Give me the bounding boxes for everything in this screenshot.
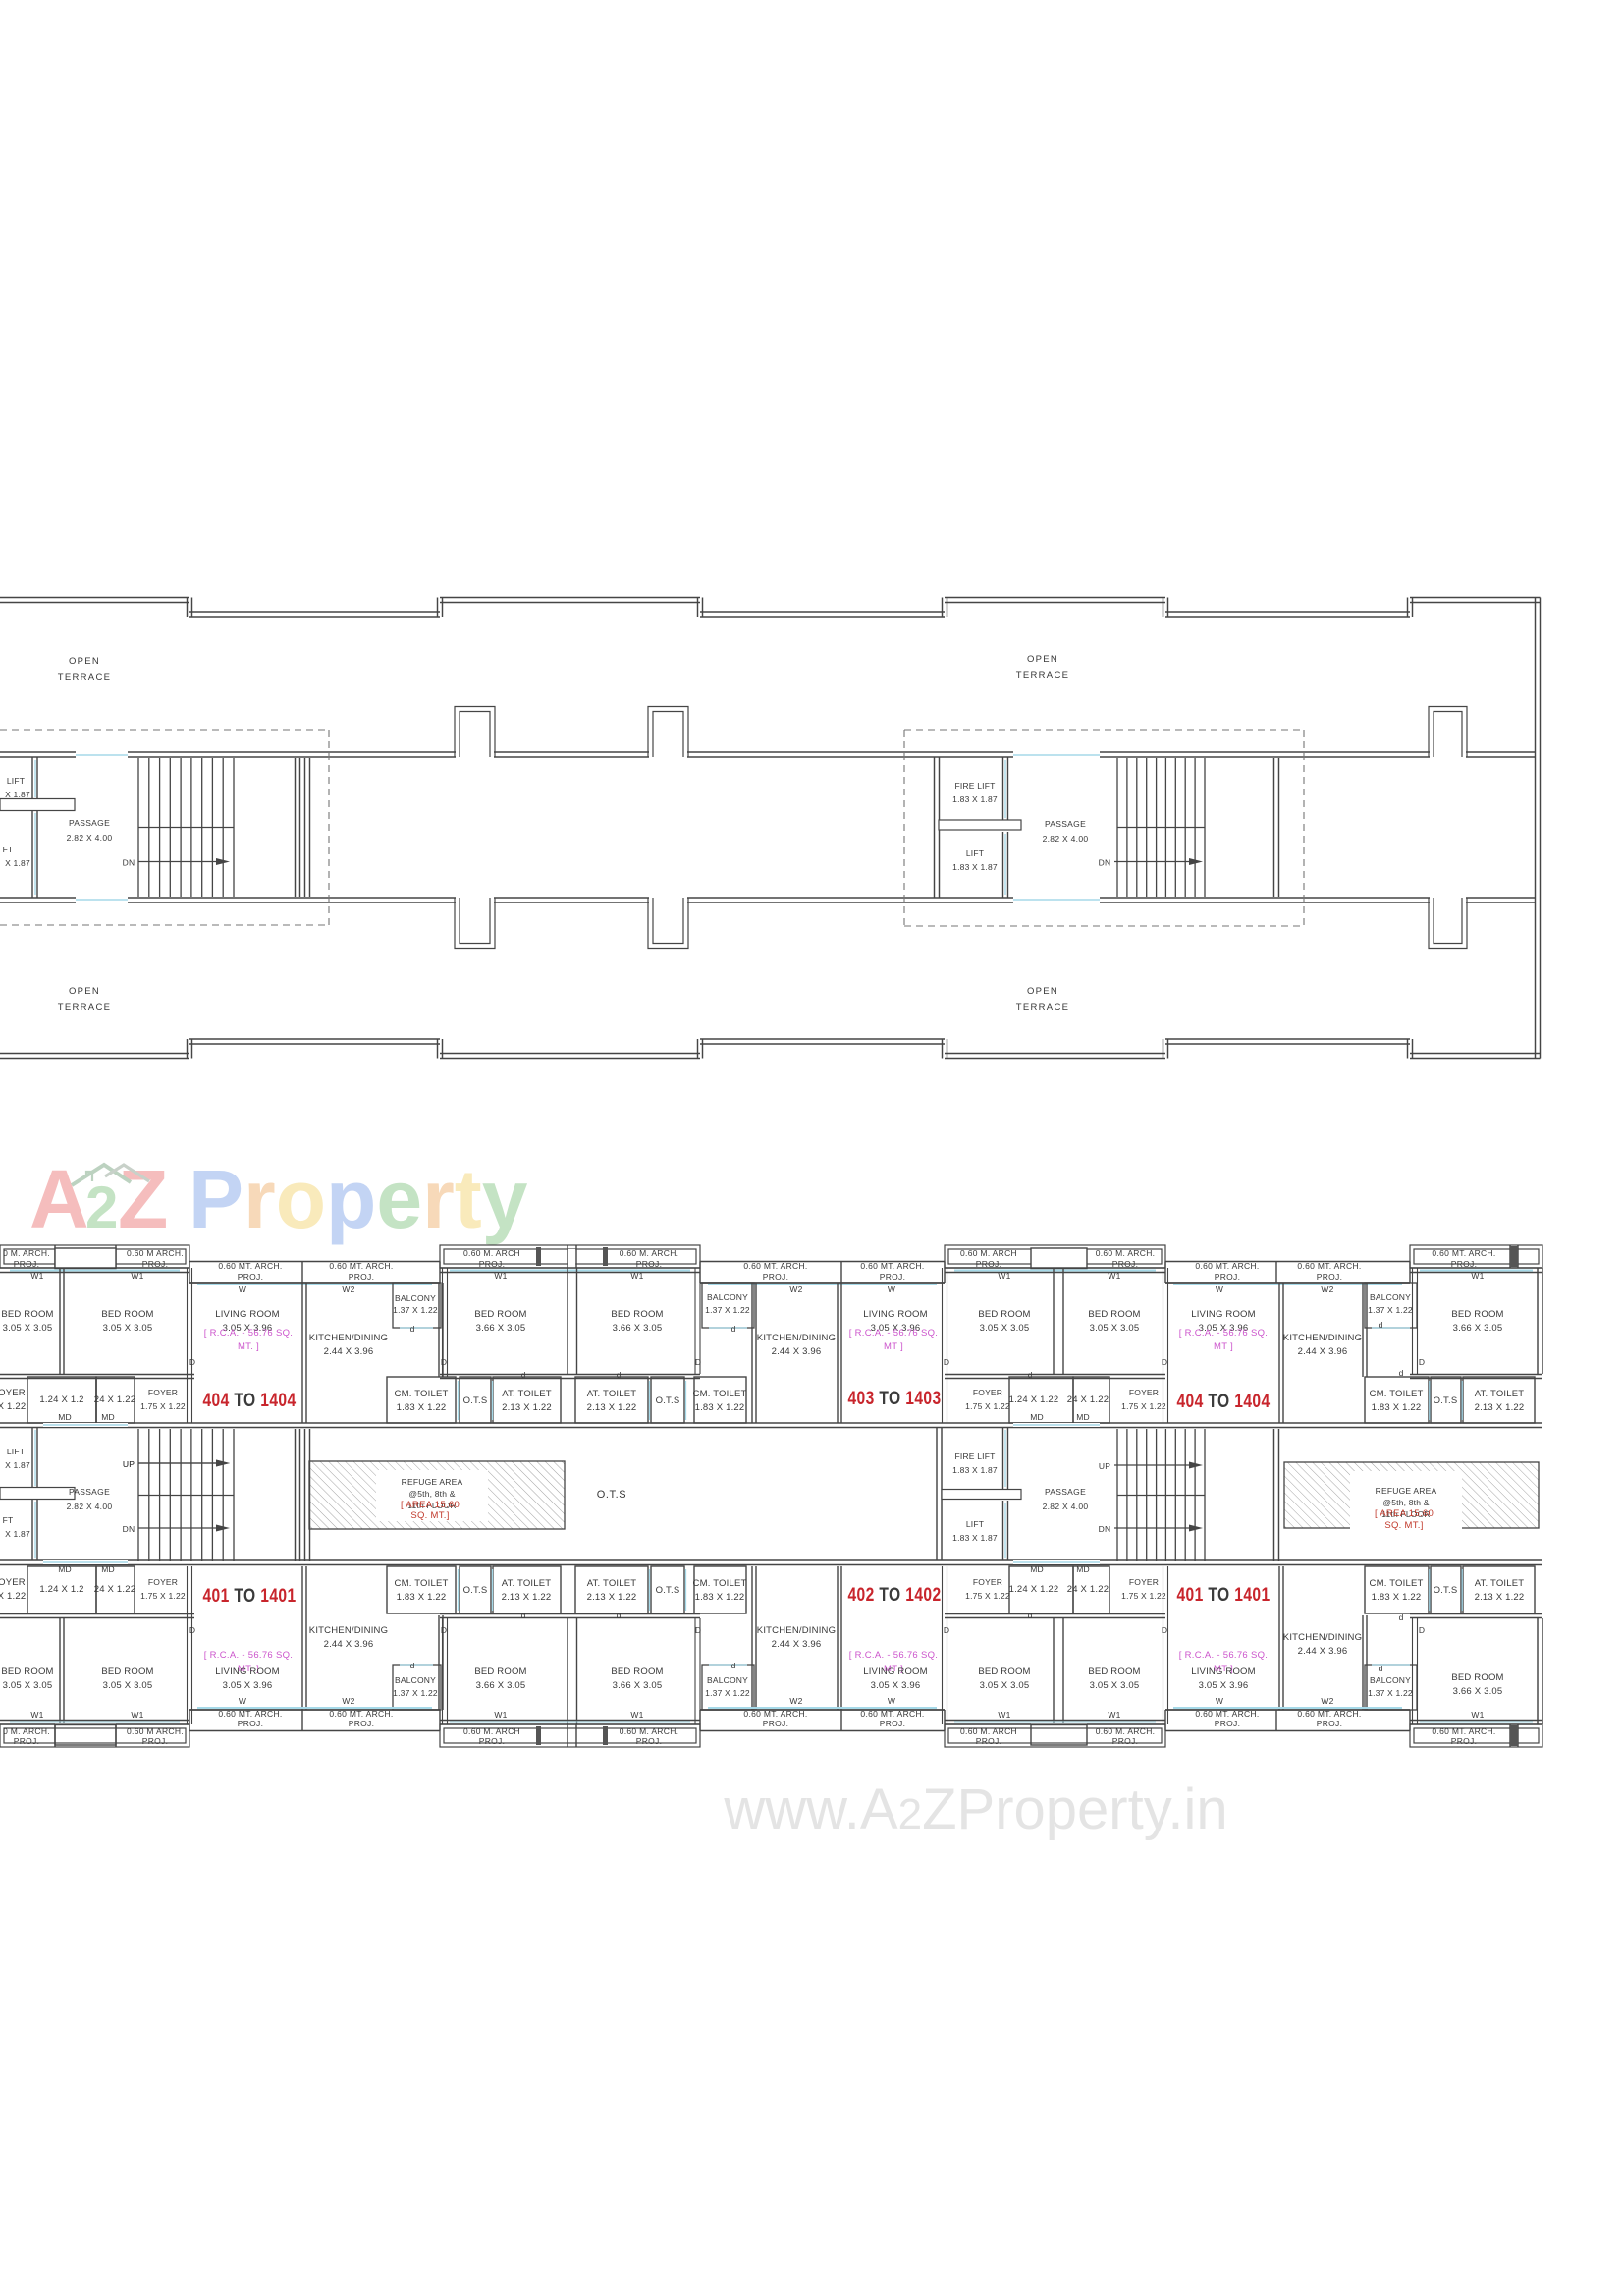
svg-text:3.05 X 3.05: 3.05 X 3.05 <box>103 1323 153 1334</box>
svg-text:X 1.87: X 1.87 <box>5 1460 30 1470</box>
svg-text:2.82 X 4.00: 2.82 X 4.00 <box>1043 834 1089 844</box>
svg-text:3.66 X 3.05: 3.66 X 3.05 <box>1453 1323 1503 1334</box>
svg-text:O.T.S: O.T.S <box>463 1585 488 1596</box>
svg-text:[ AREA 15.60: [ AREA 15.60 <box>1375 1508 1434 1519</box>
svg-text:CM. TOILET: CM. TOILET <box>693 1389 747 1399</box>
svg-text:D: D <box>441 1625 447 1635</box>
svg-text:CM. TOILET: CM. TOILET <box>395 1578 449 1589</box>
svg-text:d: d <box>1399 1613 1404 1622</box>
svg-text:W1: W1 <box>131 1710 143 1720</box>
svg-text:1.83 X 1.22: 1.83 X 1.22 <box>397 1402 447 1413</box>
svg-text:0.60 M. ARCH: 0.60 M. ARCH <box>960 1248 1017 1258</box>
svg-text:[ R.C.A. - 56.76 SQ.: [ R.C.A. - 56.76 SQ. <box>204 1328 293 1339</box>
svg-text:FIRE LIFT: FIRE LIFT <box>955 781 996 791</box>
svg-text:0.60 M ARCH.: 0.60 M ARCH. <box>127 1248 184 1258</box>
svg-text:D: D <box>1162 1625 1167 1635</box>
svg-text:O.T.S: O.T.S <box>656 1395 680 1406</box>
svg-text:BALCONY: BALCONY <box>395 1675 436 1685</box>
svg-text:403 TO 1403: 403 TO 1403 <box>847 1387 941 1408</box>
svg-text:1.24 X 1.2: 1.24 X 1.2 <box>39 1584 83 1595</box>
svg-text:OPEN: OPEN <box>1027 654 1058 665</box>
svg-text:1.83 X 1.22: 1.83 X 1.22 <box>695 1592 745 1603</box>
svg-text:404 TO 1404: 404 TO 1404 <box>202 1389 296 1410</box>
svg-text:0.60 M. ARCH: 0.60 M. ARCH <box>463 1248 520 1258</box>
svg-text:0.60 M. ARCH.: 0.60 M. ARCH. <box>1096 1726 1156 1736</box>
svg-text:d: d <box>1379 1320 1383 1330</box>
svg-text:PROJ.: PROJ. <box>238 1719 264 1728</box>
svg-text:LIFT: LIFT <box>7 1447 25 1456</box>
svg-text:O.T.S: O.T.S <box>463 1395 488 1406</box>
svg-text:OPEN: OPEN <box>69 656 100 667</box>
svg-text:0.60 M ARCH.: 0.60 M ARCH. <box>127 1726 184 1736</box>
svg-text:3.05 X 3.05: 3.05 X 3.05 <box>980 1323 1030 1334</box>
svg-text:REFUGE AREA: REFUGE AREA <box>402 1477 463 1487</box>
svg-text:PROJ.: PROJ. <box>1215 1272 1241 1282</box>
svg-text:W: W <box>1216 1285 1223 1294</box>
svg-text:REFUGE AREA: REFUGE AREA <box>1376 1486 1437 1496</box>
svg-text:D: D <box>1419 1357 1425 1367</box>
svg-text:1.37 X 1.22: 1.37 X 1.22 <box>393 1305 438 1315</box>
svg-text:SQ. MT.]: SQ. MT.] <box>1384 1520 1423 1531</box>
svg-text:FOYER: FOYER <box>148 1577 178 1587</box>
svg-text:PROJ.: PROJ. <box>636 1736 663 1746</box>
svg-text:FT: FT <box>3 1515 14 1525</box>
svg-text:[ R.C.A. - 56.76 SQ.: [ R.C.A. - 56.76 SQ. <box>849 1650 938 1661</box>
svg-text:W1: W1 <box>998 1710 1010 1720</box>
svg-text:1.75 X 1.22: 1.75 X 1.22 <box>965 1591 1010 1601</box>
svg-text:1.24 X 1.22: 1.24 X 1.22 <box>1009 1394 1059 1405</box>
svg-text:2.13 X 1.22: 2.13 X 1.22 <box>587 1402 637 1413</box>
svg-text:[ AREA 15.60: [ AREA 15.60 <box>401 1500 460 1510</box>
svg-text:MT. ]: MT. ] <box>238 1341 259 1352</box>
svg-text:SQ. MT.]: SQ. MT.] <box>410 1510 449 1521</box>
svg-text:1.24 X 1.2: 1.24 X 1.2 <box>39 1394 83 1405</box>
svg-text:LIVING ROOM: LIVING ROOM <box>863 1309 928 1320</box>
svg-text:AT. TOILET: AT. TOILET <box>1475 1578 1525 1589</box>
svg-text:1.75 X 1.22: 1.75 X 1.22 <box>1121 1401 1166 1411</box>
svg-text:PROJ.: PROJ. <box>1317 1272 1343 1282</box>
svg-text:1.37 X 1.22: 1.37 X 1.22 <box>393 1688 438 1698</box>
svg-text:0.60 M. ARCH: 0.60 M. ARCH <box>463 1726 520 1736</box>
svg-text:0.60 MT. ARCH.: 0.60 MT. ARCH. <box>1195 1709 1259 1719</box>
svg-text:1.75 X 1.22: 1.75 X 1.22 <box>140 1591 186 1601</box>
svg-text:0.60 MT. ARCH.: 0.60 MT. ARCH. <box>218 1261 282 1271</box>
svg-text:W1: W1 <box>1108 1271 1120 1281</box>
svg-text:PASSAGE: PASSAGE <box>1045 1487 1086 1497</box>
svg-text:O.T.S: O.T.S <box>1434 1395 1458 1406</box>
svg-text:www.A2ZProperty.in: www.A2ZProperty.in <box>723 1777 1227 1841</box>
svg-text:1.75 X 1.22: 1.75 X 1.22 <box>140 1401 186 1411</box>
svg-text:0.60 MT. ARCH.: 0.60 MT. ARCH. <box>743 1709 807 1719</box>
svg-text:1.37 X 1.22: 1.37 X 1.22 <box>705 1688 750 1698</box>
svg-text:PROJ.: PROJ. <box>1451 1736 1478 1746</box>
svg-text:d: d <box>1028 1611 1033 1620</box>
svg-text:FT: FT <box>3 845 14 854</box>
svg-text:PROJ.: PROJ. <box>763 1272 789 1282</box>
svg-text:3.66 X 3.05: 3.66 X 3.05 <box>613 1323 663 1334</box>
svg-text:W: W <box>888 1696 895 1706</box>
svg-text:@5th, 8th &: @5th, 8th & <box>408 1489 455 1499</box>
svg-text:BED ROOM: BED ROOM <box>1 1309 53 1320</box>
svg-text:DN: DN <box>1099 858 1111 868</box>
svg-text:TERRACE: TERRACE <box>58 1002 112 1012</box>
svg-text:0.60 MT. ARCH.: 0.60 MT. ARCH. <box>743 1261 807 1271</box>
svg-text:0.60 MT. ARCH.: 0.60 MT. ARCH. <box>860 1709 924 1719</box>
svg-text:d: d <box>1028 1370 1033 1380</box>
svg-text:O.T.S: O.T.S <box>656 1585 680 1596</box>
svg-text:W2: W2 <box>789 1696 802 1706</box>
svg-text:[ R.C.A. - 56.76 SQ.: [ R.C.A. - 56.76 SQ. <box>204 1650 293 1661</box>
svg-text:MD: MD <box>58 1412 72 1422</box>
svg-text:MT ]: MT ] <box>1214 1341 1233 1352</box>
svg-text:0.60 MT. ARCH.: 0.60 MT. ARCH. <box>329 1709 393 1719</box>
svg-text:2.44 X 3.96: 2.44 X 3.96 <box>772 1639 822 1650</box>
svg-text:2.82 X 4.00: 2.82 X 4.00 <box>67 833 113 843</box>
svg-text:W2: W2 <box>342 1285 354 1294</box>
svg-text:LIFT: LIFT <box>7 776 25 786</box>
svg-text:D: D <box>189 1357 195 1367</box>
svg-text:d: d <box>1379 1664 1383 1673</box>
svg-text:W: W <box>239 1696 246 1706</box>
svg-text:PROJ.: PROJ. <box>1215 1719 1241 1728</box>
svg-text:FOYER: FOYER <box>973 1577 1002 1587</box>
svg-text:BALCONY: BALCONY <box>707 1675 748 1685</box>
svg-text:AT. TOILET: AT. TOILET <box>502 1578 552 1589</box>
svg-text:CM. TOILET: CM. TOILET <box>395 1389 449 1399</box>
svg-text:1.83 X 1.22: 1.83 X 1.22 <box>695 1402 745 1413</box>
svg-text:BALCONY: BALCONY <box>1370 1675 1411 1685</box>
svg-text:d: d <box>521 1611 526 1620</box>
svg-text:X 1.22: X 1.22 <box>0 1401 26 1412</box>
svg-text:3.05 X 3.05: 3.05 X 3.05 <box>3 1323 53 1334</box>
svg-text:BALCONY: BALCONY <box>707 1292 748 1302</box>
svg-text:LIVING ROOM: LIVING ROOM <box>1191 1309 1256 1320</box>
svg-text:MD: MD <box>101 1412 115 1422</box>
svg-text:PASSAGE: PASSAGE <box>69 1487 110 1497</box>
svg-text:PROJ.: PROJ. <box>880 1272 906 1282</box>
svg-text:BED ROOM: BED ROOM <box>1088 1667 1140 1677</box>
svg-text:BED ROOM: BED ROOM <box>611 1309 663 1320</box>
svg-text:PROJ.: PROJ. <box>976 1736 1002 1746</box>
svg-text:2: 2 <box>85 1175 118 1240</box>
svg-text:0.60 M. ARCH: 0.60 M. ARCH <box>960 1726 1017 1736</box>
svg-text:1.37 X 1.22: 1.37 X 1.22 <box>1368 1688 1413 1698</box>
svg-text:W: W <box>888 1285 895 1294</box>
svg-text:W2: W2 <box>1321 1285 1333 1294</box>
svg-text:BED ROOM: BED ROOM <box>474 1309 526 1320</box>
svg-text:D: D <box>944 1357 949 1367</box>
svg-text:1.83 X 1.22: 1.83 X 1.22 <box>1372 1402 1422 1413</box>
svg-text:[ R.C.A. - 56.76 SQ.: [ R.C.A. - 56.76 SQ. <box>1179 1328 1268 1339</box>
svg-text:3.05 X 3.96: 3.05 X 3.96 <box>223 1680 273 1691</box>
svg-text:D: D <box>695 1357 701 1367</box>
svg-text:PROJ.: PROJ. <box>142 1736 169 1746</box>
svg-text:PROJ.: PROJ. <box>14 1736 40 1746</box>
svg-text:3.05 X 3.05: 3.05 X 3.05 <box>1090 1680 1140 1691</box>
svg-text:0.60 MT. ARCH.: 0.60 MT. ARCH. <box>329 1261 393 1271</box>
svg-text:Property: Property <box>189 1153 528 1245</box>
svg-text:d: d <box>617 1370 622 1380</box>
svg-text:KITCHEN/DINING: KITCHEN/DINING <box>757 1625 836 1636</box>
svg-text:W1: W1 <box>30 1710 43 1720</box>
svg-text:3.66 X 3.05: 3.66 X 3.05 <box>613 1680 663 1691</box>
svg-text:1.37 X 1.22: 1.37 X 1.22 <box>705 1305 750 1315</box>
svg-text:O.T.S: O.T.S <box>1434 1585 1458 1596</box>
svg-text:OPEN: OPEN <box>69 986 100 997</box>
svg-text:LIFT: LIFT <box>966 848 984 858</box>
svg-text:BED ROOM: BED ROOM <box>1451 1309 1503 1320</box>
svg-text:W: W <box>1216 1696 1223 1706</box>
svg-text:X 1.87: X 1.87 <box>5 858 30 868</box>
svg-text:W1: W1 <box>30 1271 43 1281</box>
svg-text:24 X 1.22: 24 X 1.22 <box>94 1394 135 1405</box>
svg-text:2.13 X 1.22: 2.13 X 1.22 <box>1475 1402 1525 1413</box>
svg-text:KITCHEN/DINING: KITCHEN/DINING <box>757 1333 836 1343</box>
svg-text:2.13 X 1.22: 2.13 X 1.22 <box>502 1592 552 1603</box>
svg-text:1.24 X 1.22: 1.24 X 1.22 <box>1009 1584 1059 1595</box>
svg-text:0 M. ARCH.: 0 M. ARCH. <box>3 1726 50 1736</box>
svg-text:[ R.C.A. - 56.76 SQ.: [ R.C.A. - 56.76 SQ. <box>1179 1650 1268 1661</box>
svg-text:d: d <box>410 1661 415 1670</box>
svg-text:AT. TOILET: AT. TOILET <box>587 1578 637 1589</box>
svg-text:W1: W1 <box>630 1271 643 1281</box>
svg-text:LIVING ROOM: LIVING ROOM <box>863 1667 928 1677</box>
svg-text:2.13 X 1.22: 2.13 X 1.22 <box>502 1402 552 1413</box>
svg-text:d: d <box>731 1324 736 1334</box>
svg-text:FOYER: FOYER <box>973 1388 1002 1397</box>
svg-text:BED ROOM: BED ROOM <box>1 1667 53 1677</box>
svg-text:BALCONY: BALCONY <box>395 1293 436 1303</box>
svg-text:0.60 M. ARCH.: 0.60 M. ARCH. <box>620 1726 679 1736</box>
svg-text:404 TO 1404: 404 TO 1404 <box>1176 1390 1270 1411</box>
svg-text:24 X 1.22: 24 X 1.22 <box>1067 1394 1109 1405</box>
svg-text:3.05 X 3.96: 3.05 X 3.96 <box>871 1680 921 1691</box>
svg-text:BED ROOM: BED ROOM <box>474 1667 526 1677</box>
svg-text:3.66 X 3.05: 3.66 X 3.05 <box>476 1323 526 1334</box>
svg-text:KITCHEN/DINING: KITCHEN/DINING <box>309 1625 388 1636</box>
svg-text:PROJ.: PROJ. <box>349 1719 375 1728</box>
svg-text:KITCHEN/DINING: KITCHEN/DINING <box>1283 1333 1362 1343</box>
svg-text:LIVING ROOM: LIVING ROOM <box>215 1667 280 1677</box>
svg-text:0.60 MT. ARCH.: 0.60 MT. ARCH. <box>1432 1248 1495 1258</box>
svg-text:UP: UP <box>123 1459 135 1469</box>
svg-text:PROJ.: PROJ. <box>763 1719 789 1728</box>
svg-text:1.75 X 1.22: 1.75 X 1.22 <box>1121 1591 1166 1601</box>
svg-text:2.13 X 1.22: 2.13 X 1.22 <box>587 1592 637 1603</box>
svg-text:2.82 X 4.00: 2.82 X 4.00 <box>1043 1502 1089 1511</box>
svg-text:2.44 X 3.96: 2.44 X 3.96 <box>1298 1346 1348 1357</box>
svg-text:LIVING ROOM: LIVING ROOM <box>1191 1667 1256 1677</box>
svg-text:0.60 M. ARCH.: 0.60 M. ARCH. <box>620 1248 679 1258</box>
svg-text:1.75 X 1.22: 1.75 X 1.22 <box>965 1401 1010 1411</box>
svg-text:AT. TOILET: AT. TOILET <box>502 1389 552 1399</box>
svg-text:2.44 X 3.96: 2.44 X 3.96 <box>324 1639 374 1650</box>
svg-text:D: D <box>1419 1625 1425 1635</box>
svg-text:FOYER: FOYER <box>1129 1577 1159 1587</box>
svg-text:OYER: OYER <box>0 1388 26 1398</box>
svg-text:PROJ.: PROJ. <box>238 1272 264 1282</box>
svg-text:0.60 MT. ARCH.: 0.60 MT. ARCH. <box>860 1261 924 1271</box>
svg-text:BALCONY: BALCONY <box>1370 1292 1411 1302</box>
svg-text:W1: W1 <box>630 1710 643 1720</box>
svg-text:3.05 X 3.05: 3.05 X 3.05 <box>3 1680 53 1691</box>
svg-text:W: W <box>239 1285 246 1294</box>
svg-text:401 TO 1401: 401 TO 1401 <box>202 1584 296 1606</box>
svg-text:CM. TOILET: CM. TOILET <box>1370 1578 1424 1589</box>
svg-text:PROJ.: PROJ. <box>880 1719 906 1728</box>
svg-text:D: D <box>189 1625 195 1635</box>
svg-text:2.13 X 1.22: 2.13 X 1.22 <box>1475 1592 1525 1603</box>
svg-text:AT. TOILET: AT. TOILET <box>1475 1389 1525 1399</box>
svg-text:d: d <box>521 1370 526 1380</box>
svg-text:FIRE LIFT: FIRE LIFT <box>955 1451 996 1461</box>
svg-text:BED ROOM: BED ROOM <box>101 1667 153 1677</box>
svg-text:CM. TOILET: CM. TOILET <box>693 1578 747 1589</box>
svg-text:1.83 X 1.87: 1.83 X 1.87 <box>952 794 998 804</box>
svg-text:W1: W1 <box>1471 1710 1484 1720</box>
svg-text:W1: W1 <box>1471 1271 1484 1281</box>
svg-text:3.05 X 3.05: 3.05 X 3.05 <box>1090 1323 1140 1334</box>
svg-text:2.44 X 3.96: 2.44 X 3.96 <box>1298 1646 1348 1657</box>
svg-text:A: A <box>29 1153 89 1245</box>
svg-text:d: d <box>410 1324 415 1334</box>
svg-text:D: D <box>1162 1357 1167 1367</box>
svg-text:D: D <box>944 1625 949 1635</box>
svg-text:FOYER: FOYER <box>148 1388 178 1397</box>
svg-text:TERRACE: TERRACE <box>1016 1002 1070 1012</box>
svg-text:LIFT: LIFT <box>966 1519 984 1529</box>
svg-text:1.37 X 1.22: 1.37 X 1.22 <box>1368 1305 1413 1315</box>
svg-text:0.60 MT. ARCH.: 0.60 MT. ARCH. <box>1297 1261 1361 1271</box>
svg-text:PASSAGE: PASSAGE <box>1045 819 1086 829</box>
svg-text:24 X 1.22: 24 X 1.22 <box>94 1584 135 1595</box>
svg-text:D: D <box>441 1357 447 1367</box>
svg-text:FOYER: FOYER <box>1129 1388 1159 1397</box>
svg-text:[ R.C.A. - 56.76 SQ.: [ R.C.A. - 56.76 SQ. <box>849 1328 938 1339</box>
svg-text:PROJ.: PROJ. <box>479 1736 506 1746</box>
svg-text:1.83 X 1.87: 1.83 X 1.87 <box>952 1465 998 1475</box>
svg-text:BED ROOM: BED ROOM <box>1451 1672 1503 1683</box>
svg-text:PROJ.: PROJ. <box>1112 1736 1139 1746</box>
svg-text:AT. TOILET: AT. TOILET <box>587 1389 637 1399</box>
svg-text:PROJ.: PROJ. <box>349 1272 375 1282</box>
svg-text:W1: W1 <box>998 1271 1010 1281</box>
svg-text:TERRACE: TERRACE <box>1016 670 1070 681</box>
svg-text:O.T.S: O.T.S <box>597 1489 627 1501</box>
svg-text:d: d <box>617 1611 622 1620</box>
svg-text:MD: MD <box>1076 1412 1090 1422</box>
svg-text:X 1.87: X 1.87 <box>5 1529 30 1539</box>
svg-text:BED ROOM: BED ROOM <box>978 1667 1030 1677</box>
svg-text:UP: UP <box>1099 1461 1110 1471</box>
svg-text:W1: W1 <box>1108 1710 1120 1720</box>
svg-text:OPEN: OPEN <box>1027 986 1058 997</box>
svg-text:DN: DN <box>123 858 135 868</box>
svg-text:DN: DN <box>1099 1524 1111 1534</box>
svg-text:KITCHEN/DINING: KITCHEN/DINING <box>1283 1632 1362 1643</box>
svg-text:402 TO 1402: 402 TO 1402 <box>847 1583 941 1605</box>
svg-text:PASSAGE: PASSAGE <box>69 818 110 828</box>
svg-text:1.83 X 1.87: 1.83 X 1.87 <box>952 862 998 872</box>
svg-text:W2: W2 <box>789 1285 802 1294</box>
svg-text:24 X 1.22: 24 X 1.22 <box>1067 1584 1109 1595</box>
svg-text:X 1.87: X 1.87 <box>5 790 30 799</box>
svg-text:MT ]: MT ] <box>884 1341 903 1352</box>
svg-text:BED ROOM: BED ROOM <box>1088 1309 1140 1320</box>
svg-text:401 TO 1401: 401 TO 1401 <box>1176 1583 1270 1605</box>
svg-text:BED ROOM: BED ROOM <box>101 1309 153 1320</box>
svg-text:CM. TOILET: CM. TOILET <box>1370 1389 1424 1399</box>
svg-text:@5th, 8th &: @5th, 8th & <box>1382 1498 1429 1507</box>
svg-text:3.05 X 3.05: 3.05 X 3.05 <box>980 1680 1030 1691</box>
svg-text:LIVING ROOM: LIVING ROOM <box>215 1309 280 1320</box>
svg-text:BED ROOM: BED ROOM <box>611 1667 663 1677</box>
svg-text:DN: DN <box>123 1524 135 1534</box>
svg-text:BED ROOM: BED ROOM <box>978 1309 1030 1320</box>
svg-text:W1: W1 <box>494 1710 507 1720</box>
svg-text:PROJ.: PROJ. <box>1317 1719 1343 1728</box>
svg-text:W1: W1 <box>494 1271 507 1281</box>
svg-text:TERRACE: TERRACE <box>58 672 112 683</box>
svg-text:0.60 MT. ARCH.: 0.60 MT. ARCH. <box>218 1709 282 1719</box>
svg-text:1.83 X 1.22: 1.83 X 1.22 <box>1372 1592 1422 1603</box>
svg-text:0.60 M. ARCH.: 0.60 M. ARCH. <box>1096 1248 1156 1258</box>
svg-text:W2: W2 <box>1321 1696 1333 1706</box>
svg-text:OYER: OYER <box>0 1577 26 1588</box>
svg-text:3.66 X 3.05: 3.66 X 3.05 <box>476 1680 526 1691</box>
svg-text:X 1.22: X 1.22 <box>0 1591 26 1602</box>
svg-text:W2: W2 <box>342 1696 354 1706</box>
svg-text:3.05 X 3.96: 3.05 X 3.96 <box>1199 1680 1249 1691</box>
svg-text:KITCHEN/DINING: KITCHEN/DINING <box>309 1333 388 1343</box>
svg-text:0.60 MT. ARCH.: 0.60 MT. ARCH. <box>1297 1709 1361 1719</box>
svg-text:2.44 X 3.96: 2.44 X 3.96 <box>772 1346 822 1357</box>
svg-text:d: d <box>731 1661 736 1670</box>
svg-text:0.60 MT. ARCH.: 0.60 MT. ARCH. <box>1432 1726 1495 1736</box>
svg-text:1.83 X 1.87: 1.83 X 1.87 <box>952 1533 998 1543</box>
svg-text:D: D <box>695 1625 701 1635</box>
svg-text:3.05 X 3.05: 3.05 X 3.05 <box>103 1680 153 1691</box>
svg-text:2.82 X 4.00: 2.82 X 4.00 <box>67 1502 113 1511</box>
svg-text:0 M. ARCH.: 0 M. ARCH. <box>3 1248 50 1258</box>
svg-text:3.66 X 3.05: 3.66 X 3.05 <box>1453 1686 1503 1697</box>
svg-text:W1: W1 <box>131 1271 143 1281</box>
svg-text:0.60 MT. ARCH.: 0.60 MT. ARCH. <box>1195 1261 1259 1271</box>
svg-text:1.83 X 1.22: 1.83 X 1.22 <box>397 1592 447 1603</box>
svg-text:2.44 X 3.96: 2.44 X 3.96 <box>324 1346 374 1357</box>
svg-text:MD: MD <box>1030 1412 1044 1422</box>
